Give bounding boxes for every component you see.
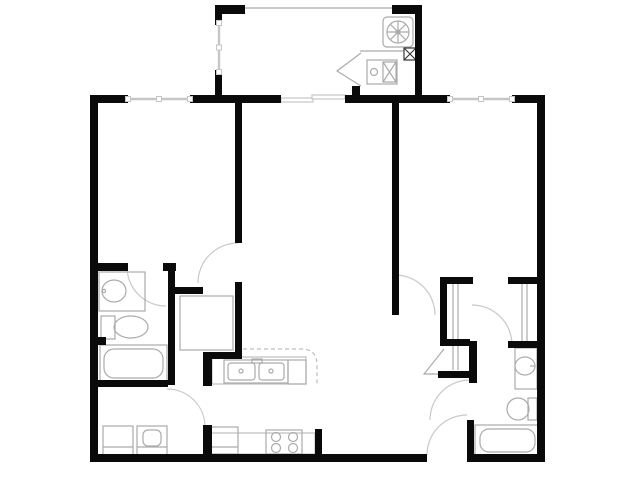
bath1-tub — [100, 345, 167, 382]
burner-left-front — [272, 444, 281, 453]
wall-closet1-top — [175, 287, 203, 294]
bed1-closet-shelf — [180, 296, 233, 350]
wall-bath1-plumbing-stub — [98, 337, 106, 345]
bath1-toilet-bowl — [114, 316, 148, 338]
balcony-side-window-mullion-2 — [217, 70, 222, 75]
floor-plan-svg — [0, 0, 640, 480]
bath2-hall-door-swing — [472, 305, 512, 345]
kitchen-sink-basin-left — [228, 363, 255, 380]
bath2-door-swing — [430, 380, 470, 420]
wall-exterior-right — [537, 95, 545, 462]
dishwasher — [288, 360, 306, 384]
bed2-window-mullion-2 — [510, 97, 515, 102]
floor-plan — [0, 0, 640, 480]
sink-drain-left — [239, 369, 243, 373]
kitchen-sink-basin-right — [259, 363, 284, 380]
wall-top-living-right — [345, 95, 450, 103]
wall-laundry-top — [98, 380, 168, 387]
wall-kitchen-stub-lower — [203, 425, 212, 455]
dryer-door — [143, 430, 161, 446]
wall-kitchen-stub-upper — [203, 352, 212, 386]
wall-bath1-top — [98, 263, 128, 271]
entry-door-swing — [427, 415, 467, 455]
water-heater-body — [367, 60, 397, 84]
wall-top-mid — [190, 95, 281, 103]
kitchen-base-counter — [210, 433, 315, 454]
burner-left-back — [272, 433, 281, 442]
bath1-toilet-tank — [101, 316, 115, 339]
washer — [103, 426, 133, 455]
patio-door-panel-left — [281, 98, 313, 102]
laundry-door-swing — [167, 389, 205, 427]
balcony-wall-right — [415, 5, 422, 96]
bath1-faucet-dot — [102, 289, 105, 292]
wall-closet2-left — [440, 277, 447, 346]
balcony-side-window-mullion-1 — [217, 45, 222, 50]
utility-door-leaf — [337, 53, 361, 86]
bed2-door-swing — [395, 275, 435, 315]
bath2-vanity — [515, 348, 537, 389]
bed1-window-mullion-0 — [126, 97, 131, 102]
bed1-door-swing — [198, 243, 238, 283]
wall-bath2-left — [467, 420, 474, 458]
bed2-window-mullion-0 — [448, 97, 453, 102]
wall-bath1-right — [168, 265, 175, 385]
wall-closet2-bottom — [440, 339, 470, 346]
linen-closet-door-leaf — [424, 349, 446, 374]
patio-door-panel-right — [312, 95, 345, 99]
bed2-window-mullion-1 — [479, 97, 484, 102]
wall-bottom-left — [90, 454, 427, 462]
burner-right-back — [289, 433, 298, 442]
wall-closet3-bottom — [508, 341, 540, 348]
bath2-toilet-bowl — [507, 398, 529, 420]
sink-drain-right — [269, 369, 273, 373]
wall-kitchen-stub-right — [315, 429, 322, 455]
wall-closet2-top — [440, 277, 473, 284]
wall-bottom-right — [467, 454, 545, 462]
water-heater-knob — [371, 69, 378, 76]
ac-fan-blades — [387, 21, 409, 43]
water-heater-panel — [383, 62, 396, 82]
bath1-tub-basin — [104, 349, 163, 378]
wall-living-bed2 — [392, 103, 399, 315]
wall-exterior-left — [90, 95, 98, 462]
patio-door-jamb — [352, 86, 360, 95]
wall-top-bed1-left — [90, 95, 128, 103]
bed1-window-mullion-1 — [157, 97, 162, 102]
burner-right-front — [289, 444, 298, 453]
wall-linen-bottom — [438, 371, 477, 378]
bed1-window-mullion-2 — [188, 97, 193, 102]
balcony-side-window-mullion-0 — [217, 21, 222, 26]
bath1-door-swing — [127, 267, 166, 306]
fridge — [211, 427, 238, 454]
wall-closet1-right — [235, 282, 242, 359]
wall-bed1-living — [235, 103, 242, 243]
wall-closet3-top — [508, 277, 538, 284]
bath2-tub-basin — [480, 429, 535, 452]
utility-vent-box — [404, 48, 416, 60]
